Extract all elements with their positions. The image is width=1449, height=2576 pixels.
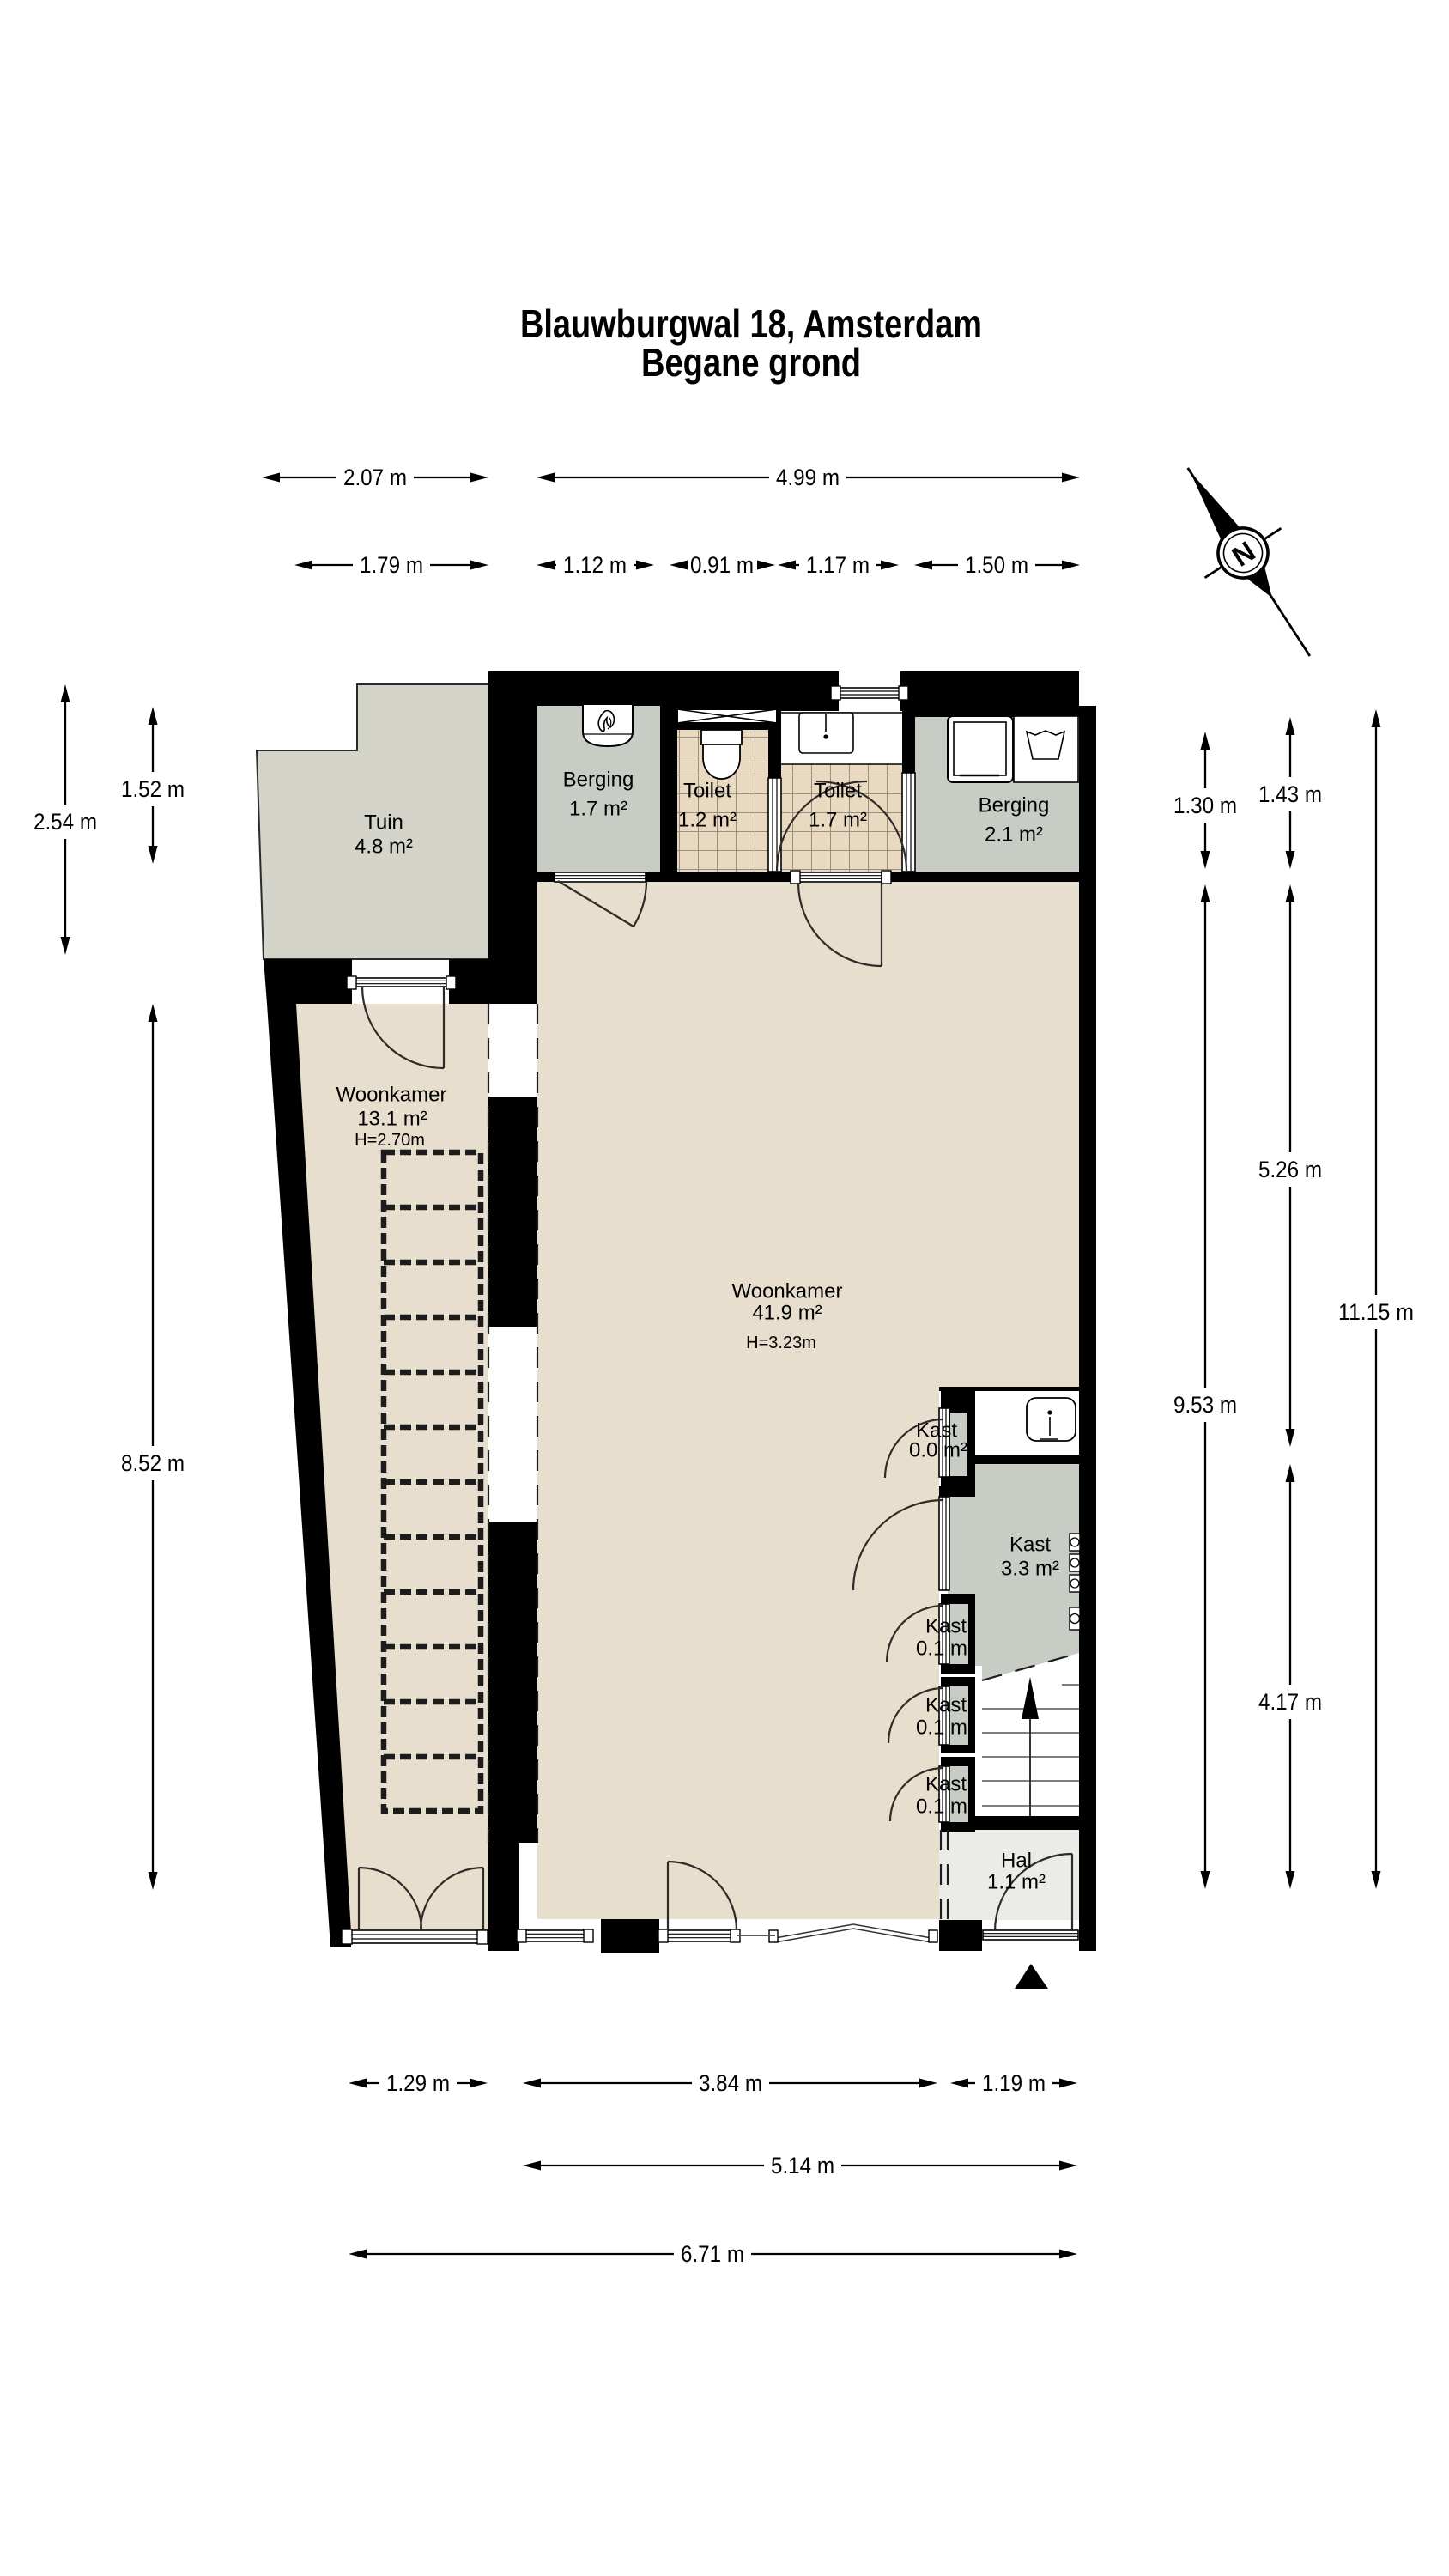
svg-text:0.1 m: 0.1 m: [916, 1795, 967, 1819]
svg-text:0.1 m: 0.1 m: [916, 1637, 967, 1661]
svg-text:Kast: Kast: [925, 1773, 967, 1796]
svg-text:0.91 m: 0.91 m: [690, 552, 754, 578]
svg-text:1.7 m²: 1.7 m²: [569, 798, 627, 821]
svg-text:1.19 m: 1.19 m: [982, 2070, 1046, 2096]
svg-text:1.52 m: 1.52 m: [121, 776, 185, 802]
svg-text:4.17 m: 4.17 m: [1258, 1689, 1322, 1715]
svg-text:1.43 m: 1.43 m: [1258, 781, 1322, 807]
svg-text:1.1 m²: 1.1 m²: [987, 1871, 1046, 1894]
svg-text:Toilet: Toilet: [814, 780, 862, 803]
svg-text:Kast: Kast: [1009, 1534, 1051, 1557]
svg-text:6.71 m: 6.71 m: [681, 2241, 744, 2267]
svg-text:2.54 m: 2.54 m: [33, 809, 97, 835]
svg-text:1.30 m: 1.30 m: [1173, 793, 1237, 818]
svg-text:H=2.70m: H=2.70m: [355, 1131, 425, 1150]
svg-text:13.1 m²: 13.1 m²: [357, 1108, 427, 1131]
svg-text:1.17 m: 1.17 m: [806, 552, 870, 578]
svg-text:Berging: Berging: [979, 794, 1050, 817]
svg-text:5.26 m: 5.26 m: [1258, 1157, 1322, 1182]
svg-text:4.8 m²: 4.8 m²: [355, 835, 413, 859]
svg-text:1.79 m: 1.79 m: [360, 552, 423, 578]
svg-text:4.99 m: 4.99 m: [776, 465, 840, 490]
svg-text:1.50 m: 1.50 m: [965, 552, 1028, 578]
svg-text:Begane grond: Begane grond: [641, 340, 861, 385]
svg-text:11.15 m: 11.15 m: [1338, 1299, 1414, 1325]
svg-text:Tuin: Tuin: [364, 811, 403, 835]
svg-text:Kast: Kast: [925, 1694, 967, 1717]
svg-text:41.9 m²: 41.9 m²: [752, 1302, 822, 1325]
svg-text:5.14 m: 5.14 m: [771, 2153, 834, 2178]
svg-text:1.7 m²: 1.7 m²: [809, 809, 867, 832]
svg-text:H=3.23m: H=3.23m: [746, 1334, 816, 1352]
svg-text:8.52 m: 8.52 m: [121, 1450, 185, 1476]
svg-text:2.07 m: 2.07 m: [343, 465, 407, 490]
svg-text:9.53 m: 9.53 m: [1173, 1392, 1237, 1418]
svg-text:Woonkamer: Woonkamer: [336, 1084, 447, 1107]
svg-text:Hal: Hal: [1001, 1850, 1032, 1873]
svg-text:0.0 m²: 0.0 m²: [909, 1439, 967, 1462]
svg-text:3.3 m²: 3.3 m²: [1001, 1558, 1059, 1581]
svg-text:Berging: Berging: [563, 769, 634, 792]
svg-text:0.1 m: 0.1 m: [916, 1716, 967, 1740]
svg-text:3.84 m: 3.84 m: [699, 2070, 762, 2096]
svg-text:1.2 m²: 1.2 m²: [678, 809, 737, 832]
svg-text:1.29 m: 1.29 m: [386, 2070, 450, 2096]
svg-text:Woonkamer: Woonkamer: [732, 1280, 843, 1303]
svg-text:Kast: Kast: [925, 1615, 967, 1638]
svg-text:2.1 m²: 2.1 m²: [985, 823, 1043, 847]
svg-text:Toilet: Toilet: [683, 780, 731, 803]
svg-text:1.12 m: 1.12 m: [563, 552, 627, 578]
